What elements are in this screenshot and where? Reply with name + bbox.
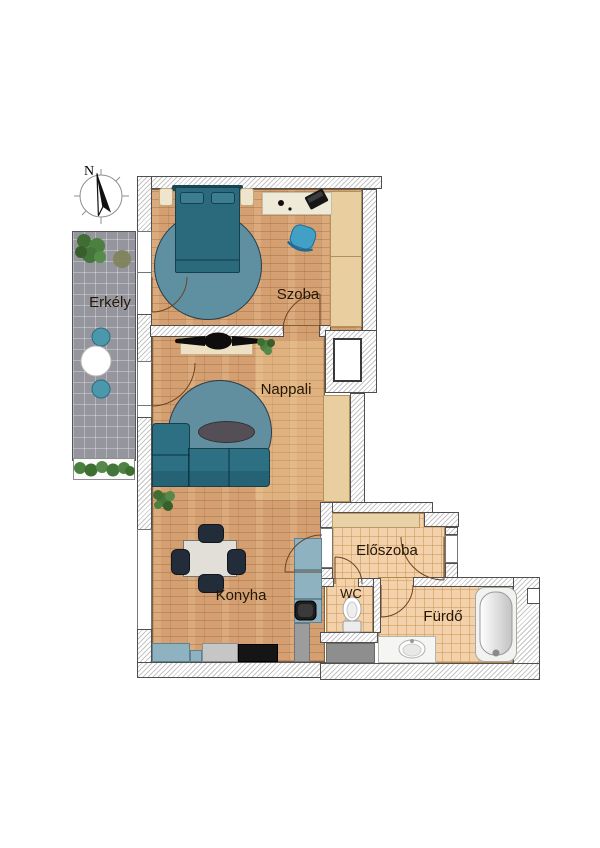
compass-north-label: N xyxy=(84,164,94,179)
szoba-label: Szoba xyxy=(262,287,334,304)
compass-needle xyxy=(91,172,111,216)
floor-plan: N xyxy=(0,0,600,848)
wc-door-swing xyxy=(335,557,362,584)
balcony-pot-plant xyxy=(113,250,131,268)
balcony-planter-plants xyxy=(74,461,135,477)
konyha-door-swing xyxy=(285,535,322,572)
laptop-icon xyxy=(304,188,328,210)
furdo-label: Fürdő xyxy=(407,609,479,626)
konyha-label: Konyha xyxy=(205,588,277,605)
compass-tick-sw xyxy=(82,211,86,215)
kitchen-sink xyxy=(295,601,316,620)
compass-tick-ne xyxy=(116,177,120,181)
szoba-balcony-door-swing xyxy=(152,277,187,312)
konyha-plant xyxy=(153,490,175,511)
erkely-label: Erkély xyxy=(74,295,146,312)
compass: N xyxy=(74,164,129,224)
eloszoba-label: Előszoba xyxy=(346,543,428,560)
desk-mouse xyxy=(278,200,284,206)
desk-chair xyxy=(287,223,319,254)
balcony-plant xyxy=(75,234,131,268)
toilet xyxy=(343,597,361,632)
balcony-chair-1 xyxy=(92,328,110,346)
nappali-label: Nappali xyxy=(248,382,324,399)
wc-label: WC xyxy=(335,587,367,601)
nappali-balcony-door-swing xyxy=(152,363,195,406)
bathtub-faucet xyxy=(493,650,500,657)
ceiling-fan-icon xyxy=(175,333,262,350)
balcony-chair-2 xyxy=(92,380,110,398)
bath-sink xyxy=(399,639,425,658)
detail-overlay: N xyxy=(0,0,600,848)
bathtub-basin xyxy=(480,592,512,657)
nappali-plant xyxy=(257,338,275,355)
balcony-table xyxy=(81,346,111,376)
desk-item-dot xyxy=(288,207,291,210)
